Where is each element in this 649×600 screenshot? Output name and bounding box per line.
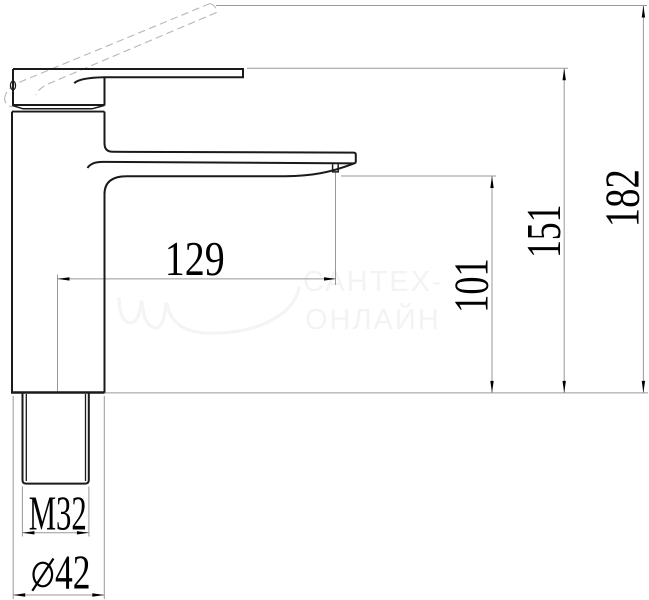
svg-text:M32: M32 — [29, 486, 87, 541]
svg-text:129: 129 — [165, 231, 225, 286]
svg-text:101: 101 — [444, 258, 499, 313]
svg-text:ОНЛАЙН: ОНЛАЙН — [305, 302, 441, 336]
svg-text:151: 151 — [516, 205, 571, 258]
svg-text:САНТЕХ-: САНТЕХ- — [303, 266, 444, 298]
svg-text:182: 182 — [595, 169, 649, 227]
svg-text:42: 42 — [55, 545, 91, 600]
